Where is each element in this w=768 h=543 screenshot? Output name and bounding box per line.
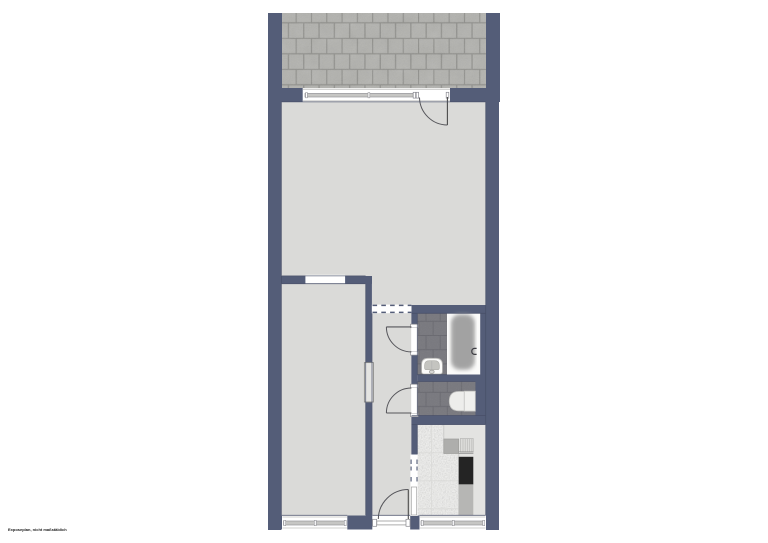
svg-text:Exposeplan, nicht maßstäblich: Exposeplan, nicht maßstäblich [8,527,67,532]
